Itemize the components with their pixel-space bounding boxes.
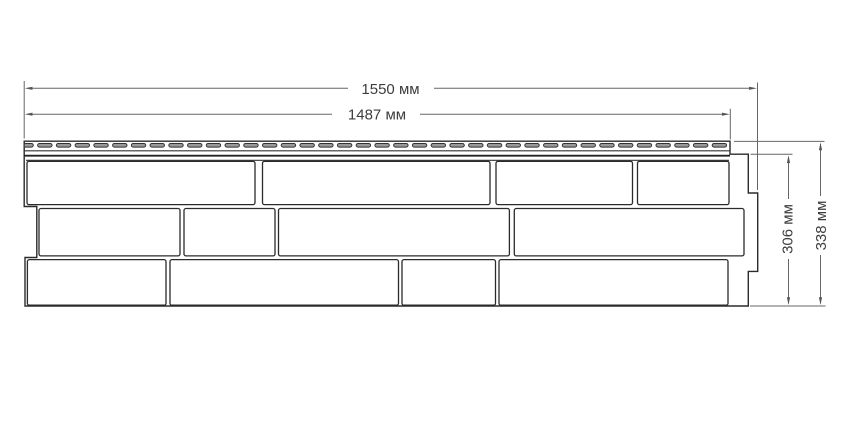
svg-text:306 мм: 306 мм <box>780 204 797 254</box>
svg-text:338 мм: 338 мм <box>813 201 830 251</box>
svg-text:1487 мм: 1487 мм <box>348 107 406 124</box>
svg-text:1550 мм: 1550 мм <box>361 81 419 98</box>
